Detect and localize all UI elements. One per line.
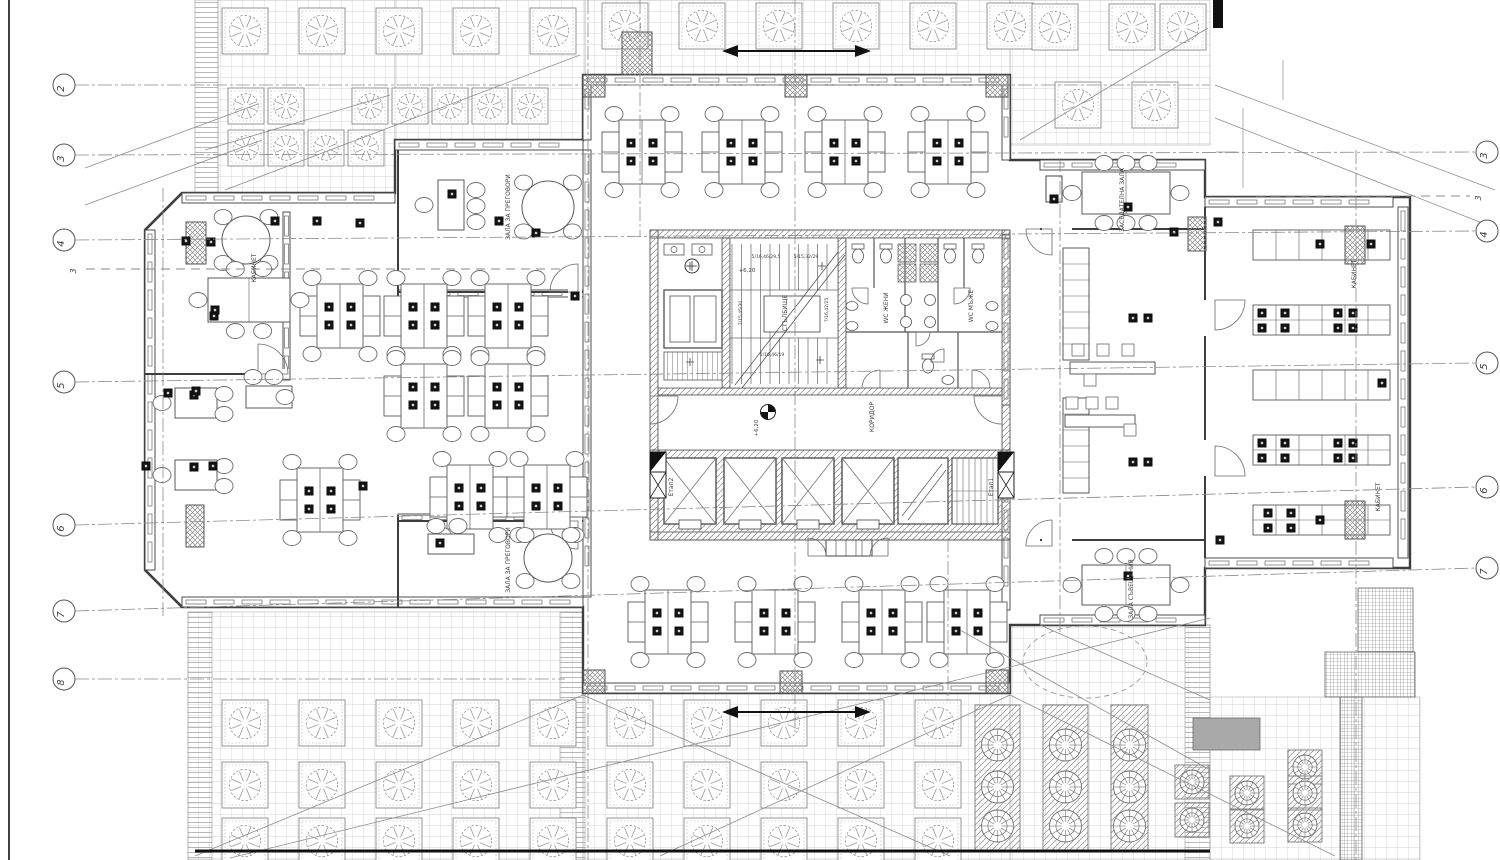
desk-pod [702,107,782,198]
chair [471,351,489,366]
tree-planter [222,762,268,808]
chair [283,531,301,546]
tree-planter [1132,82,1178,128]
tree-planter [530,818,576,860]
toilet [945,249,956,263]
label: 6 [56,525,67,531]
chair [471,427,489,442]
sink [986,302,998,311]
chair [563,175,581,190]
tree-planter [838,700,884,746]
sink [692,244,712,255]
tree-planter [1109,4,1155,50]
chair [265,370,283,385]
window-band [583,150,591,597]
chair [226,324,244,339]
chair [1139,607,1157,622]
chair [1139,549,1157,564]
chair [794,653,812,668]
desk-pod [908,107,988,198]
tree-planter [376,700,422,746]
fan-icon [982,810,1014,842]
chair [738,653,756,668]
chair [303,271,321,286]
chair [510,452,528,467]
chair [1095,607,1113,622]
grid-bubble: 7 [1476,557,1498,579]
tree-planter [222,8,268,54]
chair [845,577,863,592]
chair [901,577,919,592]
chair [527,427,545,442]
chair [794,577,812,592]
chair [339,455,357,470]
window-band [1205,197,1393,207]
tree-planter [530,762,576,808]
tree-planter [838,762,884,808]
tree-planter [376,8,422,54]
sink [846,302,858,311]
chair [845,653,863,668]
grid-bubble: 5 [53,371,75,393]
tree-planter [299,8,345,54]
fan-icon [1293,755,1317,779]
fan-icon [982,729,1014,761]
chair [215,479,233,494]
tree-planter [299,700,345,746]
desk [427,519,474,555]
label: 5 [56,382,67,388]
tree-planter [512,88,548,124]
chair [1171,578,1189,593]
chair [1095,156,1113,171]
chair [605,183,623,198]
tree-planter [761,818,807,860]
chair [705,183,723,198]
label: Етап1 [988,477,995,496]
round-table [516,528,580,589]
chair [808,183,826,198]
tree-planter [684,762,730,808]
chair [911,183,929,198]
label: КАБИНЕТ [1375,482,1382,511]
chair [467,199,485,214]
chair [562,528,580,543]
tree-planter [222,700,268,746]
chair [153,396,171,411]
tree-planter [453,762,499,808]
chair [864,183,882,198]
tree-planter [308,130,344,166]
chair [467,183,485,198]
label: ЗАСЕДАТЕЛНА ЗАЛА [1119,167,1126,232]
chair [930,653,948,668]
tree-planter [376,818,422,860]
tree-planter [228,130,264,166]
chair [387,271,405,286]
chair [761,183,779,198]
bench-desk [1253,305,1390,335]
chair [1139,156,1157,171]
label: 5/15,32/29 [794,254,819,260]
chair [705,107,723,122]
elevator-shaft [782,458,834,529]
label: 4 [1479,231,1490,237]
grid-bubble: 5 [1476,352,1498,374]
tree-planter [228,88,264,124]
desk-pod [384,271,464,362]
chair [566,452,584,467]
chair [276,390,294,405]
fan-icon [1235,814,1259,838]
chair [339,531,357,546]
chair [1139,216,1157,231]
grid-bubble: 6 [53,514,75,536]
chair [387,351,405,366]
chair [449,519,467,534]
sink [664,244,684,255]
round-table [214,210,278,271]
chair [967,107,985,122]
label: WC ЖЕНИ [883,292,890,323]
sink [846,322,858,331]
label: КАБИНЕТ [251,253,258,282]
chair [631,653,649,668]
desk-pod [927,577,1007,668]
label: 3 [56,155,67,161]
chair [605,107,623,122]
desk-pod [805,107,885,198]
tree-planter [915,818,961,860]
chair [687,653,705,668]
label: 7 [56,611,67,618]
toilet [923,359,934,373]
chair [527,351,545,366]
label: +6,20 [739,268,756,274]
label: ЗАЛА СЪВЕЩАНИЯ [1128,559,1135,618]
tree-planter [376,762,422,808]
chair [443,271,461,286]
chair [631,577,649,592]
chair [359,271,377,286]
chair [515,224,533,239]
elevator-shaft [842,458,894,529]
machine-room [898,458,948,524]
fan-icon [1235,781,1259,805]
label: 6 [1479,487,1490,493]
chair [661,183,679,198]
fan-icon [1050,771,1082,803]
desk-pod [468,271,548,362]
label: КОРИДОР [869,402,876,432]
level-mark-icon [761,405,776,420]
drawing-sheet: 23456783456733КАБИНЕТЗАЛА ЗА ПРЕГОВОРИЗА… [0,0,1500,860]
fan-icon [982,771,1014,803]
fan-icon [1114,810,1146,842]
chair [215,387,233,402]
chair [1171,186,1189,201]
chair [189,293,207,308]
tree-planter [432,88,468,124]
tree-planter [684,818,730,860]
desk-pod [300,271,380,362]
label: 3 [1474,195,1483,200]
tree-planter [472,88,508,124]
tree-planter [268,130,304,166]
bench-desk [1253,435,1390,465]
chair [433,452,451,467]
grid-bubble: 7 [53,600,75,622]
chair [244,370,262,385]
tree-planter [987,3,1033,49]
chair [967,183,985,198]
chair [427,519,445,534]
desk-pod [468,351,548,442]
chair [986,653,1004,668]
service-lift [664,290,722,348]
toilet [881,249,892,263]
tree-planter [761,700,807,746]
label: 7/15,45/30 [738,301,744,326]
grid-bubble: 3 [53,144,75,166]
tree-planter [299,762,345,808]
tree-planter [915,700,961,746]
chair [527,271,545,286]
label: 3 [1479,152,1490,158]
tree-planter [453,818,499,860]
chair [687,577,705,592]
tree-planter [392,88,428,124]
label: ЗАЛА ЗА ПРЕГОВОРИ [505,174,512,240]
chair [443,427,461,442]
tree-planter [299,818,345,860]
chair [254,324,272,339]
chair [986,577,1004,592]
desk-pod [280,455,360,546]
chair [303,347,321,362]
chair [808,107,826,122]
label: 5/16,46/29,5 [752,254,781,260]
toilet [853,249,864,263]
chair [215,407,233,422]
tree-planter [679,3,725,49]
elevator-shaft [724,458,776,529]
label: 2 [56,85,67,91]
chair [515,175,533,190]
tree-planter [1032,4,1078,50]
toilet [973,249,984,263]
chair [471,271,489,286]
desk-pod [628,577,708,668]
fan-icon [1180,770,1204,794]
chair [215,459,233,474]
tree-planter [910,3,956,49]
chair [1095,216,1113,231]
tree-planter [530,8,576,54]
window-band [395,140,583,150]
chair [359,347,377,362]
window-band [1398,207,1408,558]
fan-icon [1114,729,1146,761]
tree-planter [348,130,384,166]
chair [901,653,919,668]
chair [489,452,507,467]
chair [1095,549,1113,564]
tree-planter [761,762,807,808]
grid-bubble: 4 [1476,220,1498,242]
chair [516,573,534,588]
chair [467,215,485,230]
label: 4 [56,240,67,246]
tree-planter [453,8,499,54]
label: СТЪЛБИЩЕ [782,295,789,332]
desk-pod [842,577,922,668]
fan-icon [1114,771,1146,803]
bench-desk [1253,370,1390,400]
label: 3 [69,268,78,273]
tree-planter [915,762,961,808]
chair [516,528,534,543]
sink [986,322,998,331]
tree-planter [268,88,304,124]
fan-icon [1050,810,1082,842]
chair [283,455,301,470]
desk-pod [602,107,682,198]
label: 7/16,42/25 [824,298,830,323]
chair [1063,186,1081,201]
window-band [1205,558,1393,568]
label: 7 [1479,568,1490,575]
label: 5/16,46/19 [760,352,785,358]
label: ЗАЛА ЗА ПРЕГОВОРИ [505,527,512,593]
chair [911,107,929,122]
tree-planter [833,3,879,49]
tree-planter [352,88,388,124]
grid-bubble: 8 [53,668,75,690]
chair [1063,578,1081,593]
fan-icon [1180,808,1204,832]
chair [291,293,309,308]
chair [153,468,171,483]
sink [942,376,954,385]
grid-bubble: 3 [1476,141,1498,163]
fan-icon [1050,729,1082,761]
chair [738,577,756,592]
label: 8 [56,679,67,685]
chair [387,427,405,442]
round-table [515,175,582,239]
chair [214,210,232,225]
chair [761,107,779,122]
desk-pod [384,351,464,442]
label: +6,20 [754,419,760,436]
fan-icon [1293,813,1317,837]
bench-desk [1253,501,1390,539]
grid-bubble: 4 [53,229,75,251]
label: WC МЪЖЕ [968,290,975,323]
chair [661,107,679,122]
chair [562,573,580,588]
label: Етап2 [668,477,675,496]
tree-planter [530,700,576,746]
core [650,230,1014,556]
label: КАБИНЕТ [1351,259,1358,288]
chair [415,198,433,213]
chair [864,107,882,122]
tree-planter [222,818,268,860]
tree-planter [607,818,653,860]
grid-bubble: 2 [53,74,75,96]
chair [443,351,461,366]
label: 5 [1479,363,1490,369]
tree-planter [684,700,730,746]
tree-planter [607,762,653,808]
fan-icon [1293,781,1317,805]
floor-plan-svg: 23456783456733КАБИНЕТЗАЛА ЗА ПРЕГОВОРИЗА… [0,0,1500,860]
grid-bubble: 6 [1476,476,1498,498]
